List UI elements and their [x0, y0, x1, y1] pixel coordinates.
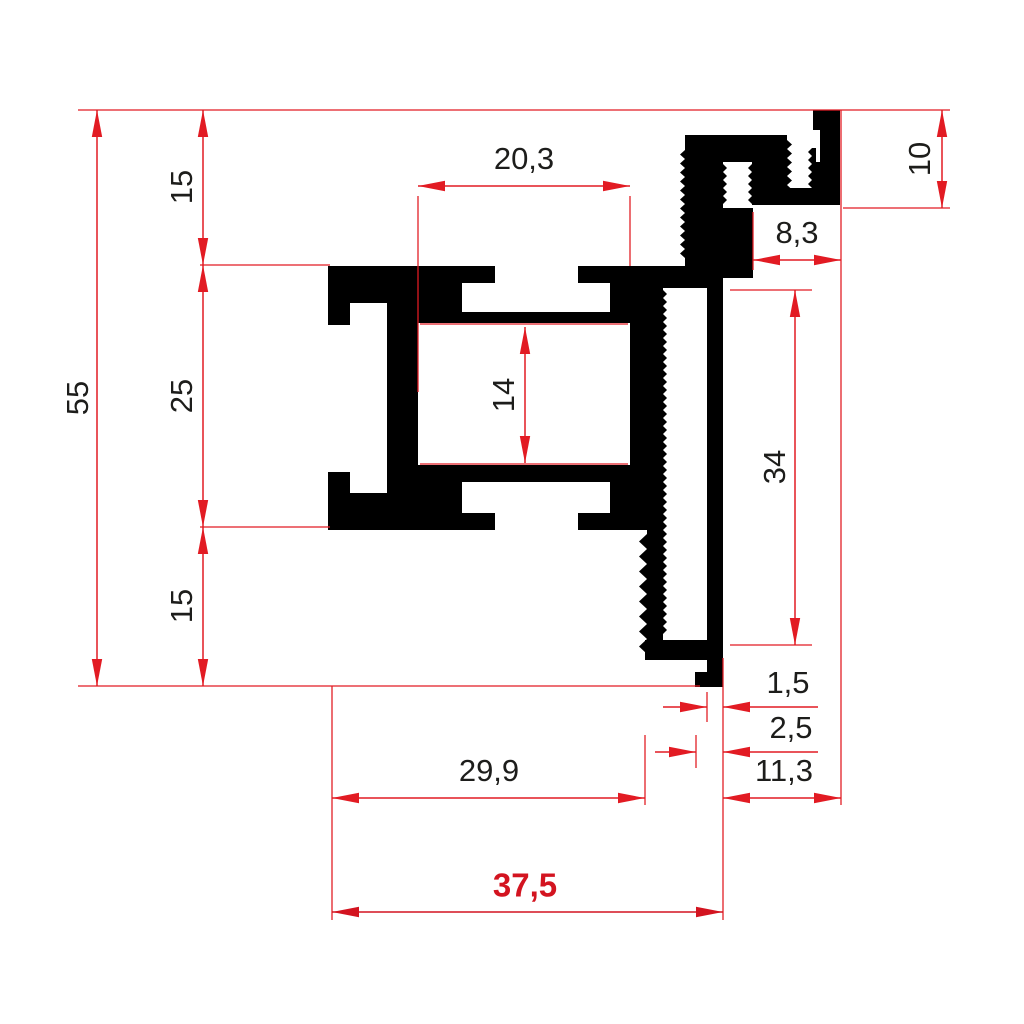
- dim-8-3-arrow-left: [753, 255, 780, 265]
- dim-20-3-arrow-right: [603, 181, 630, 191]
- dim-2-5-arrow-left: [669, 747, 696, 757]
- dim-37-5-label: 37,5: [493, 867, 557, 904]
- dim-20-3-arrow-left: [418, 181, 445, 191]
- dim-37-5-arrow-left: [332, 907, 359, 917]
- profile-shape: [418, 465, 462, 530]
- profile-shape: [328, 472, 350, 493]
- dim-15-top: [198, 110, 208, 265]
- dim-15-bottom: [198, 527, 208, 686]
- profile-shape: [462, 266, 495, 283]
- dimension-labels: 5515251520,314108,3341,52,511,329,937,5: [60, 141, 937, 904]
- dim-10-label: 10: [902, 142, 937, 176]
- dim-15-top-arrow-bottom: [198, 238, 208, 265]
- dim-29-9-arrow-right: [618, 793, 645, 803]
- profile-shape: [645, 640, 723, 660]
- dim-55-arrow-bottom: [92, 659, 102, 686]
- profile-shape: [695, 672, 707, 687]
- profile-shape: [328, 303, 350, 325]
- dim-8-3-arrow-right: [814, 255, 841, 265]
- dim-34-arrow-bottom: [790, 618, 800, 645]
- dim-37-5-arrow-right: [696, 907, 723, 917]
- dim-10: [937, 110, 947, 208]
- dim-1-5-arrow-right: [723, 702, 750, 712]
- dim-34-arrow-top: [790, 290, 800, 317]
- serration-edge: [719, 164, 727, 204]
- profile-shape: [578, 266, 610, 283]
- dim-1-5-label: 1,5: [766, 665, 809, 700]
- dim-20-3-label: 20,3: [494, 141, 554, 176]
- dim-25-label: 25: [164, 379, 199, 413]
- profile-shape: [462, 465, 610, 482]
- dim-15-top-label: 15: [164, 170, 199, 204]
- dim-55-label: 55: [60, 381, 95, 415]
- profile-shape: [462, 513, 495, 530]
- dim-29-9: [332, 793, 645, 803]
- dim-15-bottom-arrow-top: [198, 527, 208, 554]
- dim-11-3: [723, 793, 841, 803]
- dim-20-3: [418, 181, 630, 191]
- serration-edge: [639, 534, 651, 654]
- profile-shape: [723, 208, 753, 278]
- dim-11-3-arrow-right: [814, 793, 841, 803]
- dim-29-9-arrow-left: [332, 793, 359, 803]
- dim-15-top-arrow-top: [198, 110, 208, 137]
- dim-8-3-label: 8,3: [775, 215, 818, 250]
- dim-25-arrow-bottom: [198, 500, 208, 527]
- dim-2-5-arrow-right: [723, 747, 750, 757]
- dim-14-arrow-bottom: [520, 436, 530, 463]
- serration-edge: [680, 150, 689, 258]
- dim-14-label: 14: [486, 378, 521, 412]
- profile-shape: [685, 162, 723, 278]
- profile-shape: [707, 278, 723, 687]
- serration-edge: [808, 148, 816, 188]
- dim-25: [198, 265, 208, 527]
- dimension-lines: [92, 110, 947, 917]
- profile-shape: [630, 266, 663, 530]
- profile-shape: [387, 266, 418, 530]
- profile-shape: [812, 162, 840, 188]
- serration-edge: [659, 290, 667, 634]
- profile-shape: [813, 110, 840, 130]
- profile-shape: [462, 312, 610, 323]
- profile-shape: [685, 135, 787, 162]
- dim-10-arrow-top: [937, 110, 947, 137]
- profile-cross-section-drawing: 5515251520,314108,3341,52,511,329,937,5: [0, 0, 1024, 1024]
- dim-29-9-label: 29,9: [459, 753, 519, 788]
- dim-1-5-arrow-left: [680, 702, 707, 712]
- dim-11-3-arrow-left: [723, 793, 750, 803]
- dim-2-5-label: 2,5: [769, 710, 812, 745]
- dim-37-5: [332, 907, 723, 917]
- dim-15-bottom-label: 15: [164, 589, 199, 623]
- profile-shape: [418, 266, 462, 323]
- dim-55-arrow-top: [92, 110, 102, 137]
- profile-silhouette: [328, 110, 840, 687]
- dim-34-label: 34: [757, 450, 792, 484]
- profile-shape: [820, 130, 840, 162]
- dim-11-3-label: 11,3: [755, 753, 813, 788]
- dim-14-arrow-top: [520, 327, 530, 354]
- profile-shape: [578, 513, 610, 530]
- technical-drawing-page: 5515251520,314108,3341,52,511,329,937,5: [0, 0, 1024, 1024]
- dim-15-bottom-arrow-bottom: [198, 659, 208, 686]
- dim-14: [520, 327, 530, 463]
- dim-8-3: [753, 255, 841, 265]
- dim-25-arrow-top: [198, 265, 208, 292]
- serration-edge: [748, 164, 756, 204]
- dim-10-arrow-bottom: [937, 181, 947, 208]
